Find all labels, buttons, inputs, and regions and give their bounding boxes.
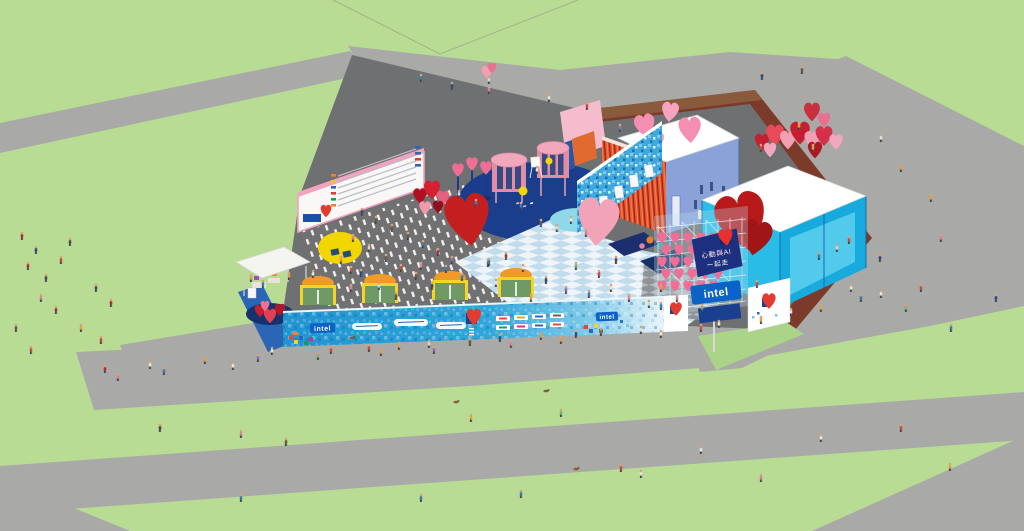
scene-canvas: 心動與AI 一起走 intel intel	[0, 0, 1024, 531]
booth	[498, 268, 534, 297]
banner-intel-label: intel	[599, 313, 615, 321]
booth	[300, 276, 336, 305]
billboard-logo	[303, 214, 321, 222]
yellow-ball	[519, 187, 528, 196]
yellow-ball	[546, 158, 553, 165]
banner-intel-label: intel	[314, 325, 331, 333]
event-venue-render: 心動與AI 一起走 intel intel	[0, 0, 1024, 531]
